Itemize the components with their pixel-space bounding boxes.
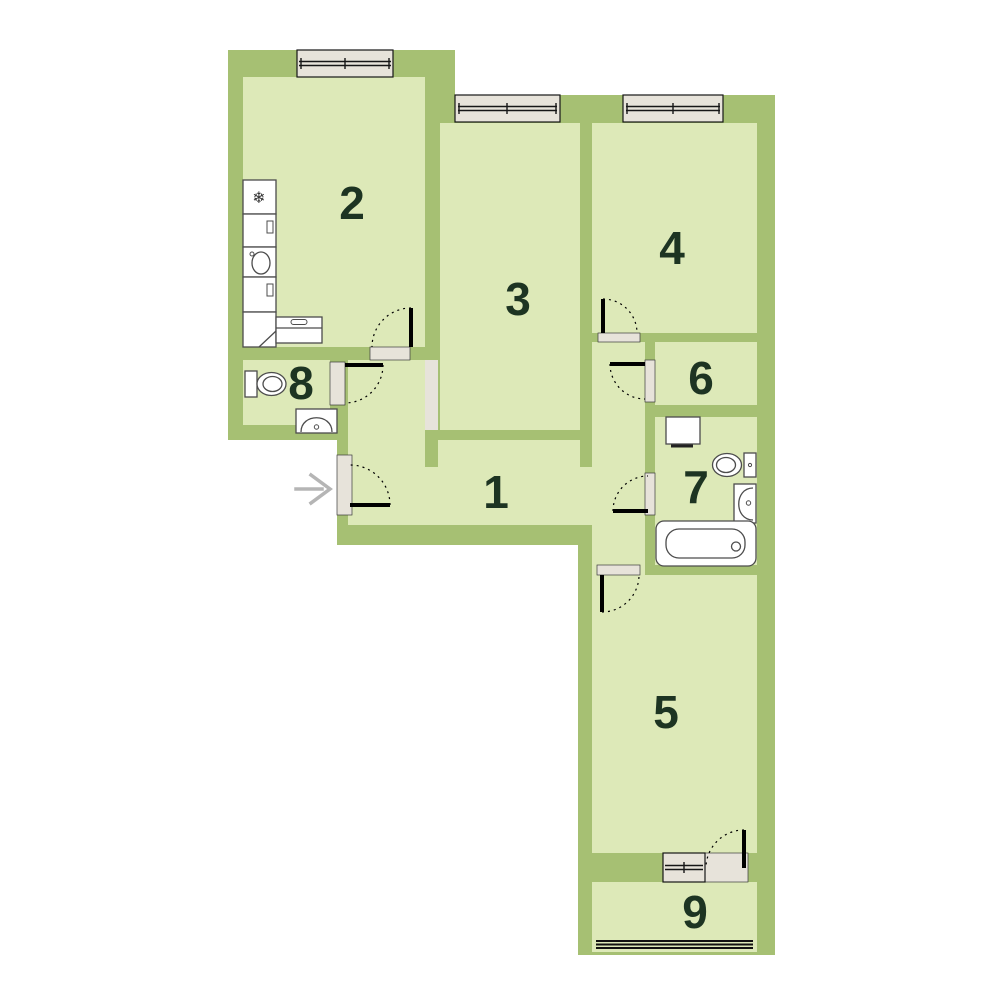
room-9-label: 9 — [682, 886, 708, 938]
window-room-5-balcony — [663, 853, 705, 882]
bathtub-icon — [656, 521, 756, 566]
entrance-arrow-icon — [296, 475, 330, 503]
room-5-label: 5 — [653, 686, 679, 738]
room-3-label: 3 — [505, 273, 531, 325]
window-room-4 — [623, 95, 723, 122]
corridor-floor — [592, 342, 645, 575]
room-8-label: 8 — [288, 357, 314, 409]
wall-room3-room1 — [430, 430, 587, 438]
wall-room2-room3 — [425, 95, 440, 360]
washing-machine-icon — [666, 417, 700, 446]
room-3-open-doorway — [425, 360, 438, 430]
room-2-label: 2 — [339, 177, 365, 229]
floor-plan-svg: ❄ — [0, 0, 1000, 1000]
snowflake-glyph: ❄ — [252, 188, 265, 207]
window-room-3 — [455, 95, 560, 122]
stove-bench-icon — [276, 317, 322, 343]
room-2-door-threshold — [370, 347, 410, 360]
room-1-label: 1 — [483, 466, 509, 518]
room-8-door-threshold — [330, 362, 345, 405]
kitchen-cabinet-icon — [243, 214, 276, 247]
room-4-label: 4 — [659, 222, 685, 274]
room-7-label: 7 — [683, 461, 709, 513]
wash-basin-icon — [734, 484, 756, 523]
window-room-2 — [297, 50, 393, 77]
toilet-icon — [245, 371, 286, 397]
floor-plan: ❄ — [0, 0, 1000, 1000]
wall-room3-room4-corridor — [580, 95, 592, 467]
room-6-door-threshold — [645, 360, 655, 402]
toilet-icon — [713, 453, 757, 477]
room-5-door-threshold — [597, 565, 640, 575]
balcony-door-threshold — [705, 853, 748, 882]
wall-stub-room1 — [425, 438, 438, 467]
wash-basin-icon — [296, 409, 337, 433]
entrance-door-threshold — [337, 455, 352, 515]
kitchen-sink-icon — [243, 247, 276, 277]
kitchen-cabinet-icon — [243, 277, 276, 312]
room-6-label: 6 — [688, 352, 714, 404]
room-7-door-threshold — [645, 473, 655, 515]
room-4-door-threshold — [598, 333, 640, 342]
wall-room6-room7 — [655, 405, 757, 417]
kitchen-corner-counter-icon — [243, 312, 276, 347]
fridge-icon: ❄ — [243, 180, 276, 214]
